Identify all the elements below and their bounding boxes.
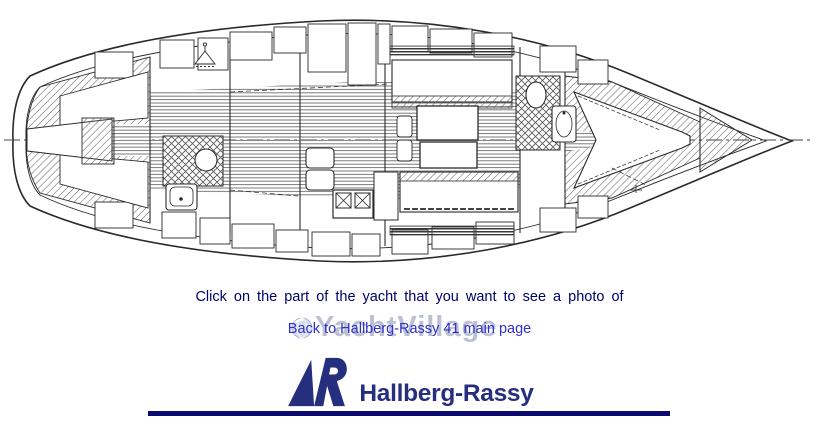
logo-text: Hallberg-Rassy [359,382,533,409]
image-map-hotspots [26,55,753,224]
window-band-top [390,46,514,55]
hotspot-galley[interactable] [300,145,400,223]
window-band-bottom [390,226,514,235]
hotspot-forward-head[interactable] [512,72,564,154]
instruction-text: Click on the part of the yacht that you … [0,289,819,305]
hotspot-aft-cabin[interactable] [26,56,150,224]
sail-r-emblem-icon [285,356,349,408]
hotspot-aft-head[interactable] [160,130,225,212]
footer-divider [148,411,670,416]
hotspot-saloon[interactable] [388,55,518,217]
hallberg-rassy-logo[interactable]: Hallberg-Rassy [0,352,819,408]
page: Click on the part of the yacht that you … [0,0,819,429]
back-link[interactable]: Back to Hallberg-Rassy 41 main page [0,321,819,337]
hotspot-forward-cabin[interactable] [563,74,753,206]
link-row: YachtVillage Back to Hallberg-Rassy 41 m… [0,304,819,352]
yacht-interior-diagram[interactable] [0,0,819,282]
